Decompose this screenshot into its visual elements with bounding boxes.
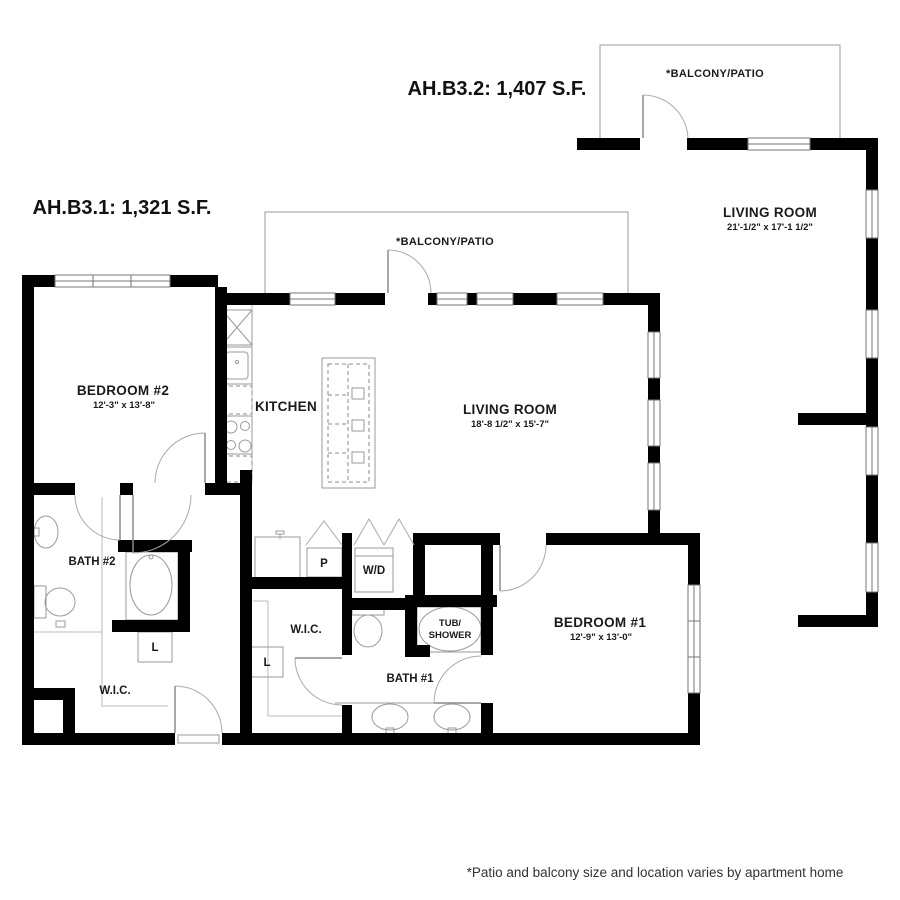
bedroom2-dims: 12'-3" x 13'-8": [93, 400, 155, 411]
hall-vanity: [255, 531, 300, 578]
pantry-bifold-door: [306, 521, 342, 545]
unit2-living-room-label: LIVING ROOM: [723, 205, 817, 220]
bath1-door: [434, 656, 481, 703]
unit2-title: AH.B3.2: 1,407 S.F.: [408, 78, 587, 100]
hall-sink-icon: [255, 537, 300, 578]
bath2-sink-icon: [34, 516, 58, 548]
bath2-door: [75, 495, 120, 540]
bath2-toilet-icon: [34, 586, 46, 618]
unit1-living-room-label: LIVING ROOM: [463, 402, 557, 417]
bedroom1-label: BEDROOM #1: [554, 615, 646, 630]
doors: [75, 95, 688, 743]
tub-shower-label-line2: SHOWER: [429, 630, 472, 641]
bedroom2-label: BEDROOM #2: [77, 383, 169, 398]
entry-door: [175, 686, 222, 743]
floor-plan-page: AH.B3.1: 1,321 S.F. AH.B3.2: 1,407 S.F. …: [0, 0, 900, 900]
footnote: *Patio and balcony size and location var…: [467, 865, 844, 880]
balcony-outline-unit2: [600, 45, 840, 143]
bath2-label: BATH #2: [68, 556, 115, 568]
bath1-sink-right-icon: [434, 704, 470, 730]
floor-plan-drawing: AH.B3.1: 1,321 S.F. AH.B3.2: 1,407 S.F. …: [0, 0, 900, 900]
balcony-door-unit2: [643, 95, 688, 138]
bedroom1-dims: 12'-9" x 13'-0": [570, 632, 632, 643]
kitchen-island: [322, 358, 375, 488]
bath1-sink-left-icon: [372, 704, 408, 730]
bath2-fixtures: [34, 516, 178, 627]
washer-dryer-label: W/D: [363, 565, 385, 577]
walls-unit1: [22, 275, 700, 745]
bath1-label: BATH #1: [386, 673, 434, 685]
balcony-door-unit1: [388, 250, 431, 293]
wic-mid-door: [295, 658, 342, 705]
wic-mid-label: W.I.C.: [290, 624, 321, 636]
washer-dryer-bifold-door: [354, 519, 414, 545]
bedroom1-door: [500, 545, 546, 591]
unit1-title: AH.B3.1: 1,321 S.F.: [33, 197, 212, 219]
unit2-living-room-dims: 21'-1/2" x 17'-1 1/2": [727, 222, 813, 233]
pantry-label: P: [320, 558, 328, 570]
balcony-outline-unit1: [265, 212, 628, 293]
balcony-label-unit1: *BALCONY/PATIO: [396, 236, 494, 248]
unit1-living-room-dims: 18'-8 1/2" x 15'-7": [471, 419, 549, 430]
bedroom2-door: [155, 433, 205, 483]
kitchen-label: KITCHEN: [255, 399, 317, 414]
tub-shower-label-line1: TUB/: [439, 618, 462, 629]
balcony-label-unit2: *BALCONY/PATIO: [666, 68, 764, 80]
labels: AH.B3.1: 1,321 S.F. AH.B3.2: 1,407 S.F. …: [33, 68, 844, 880]
linen-mid-label: L: [263, 657, 270, 669]
bath2-tub-icon: [126, 552, 178, 620]
wic-left-label: W.I.C.: [99, 685, 130, 697]
linen-left-label: L: [151, 642, 158, 654]
